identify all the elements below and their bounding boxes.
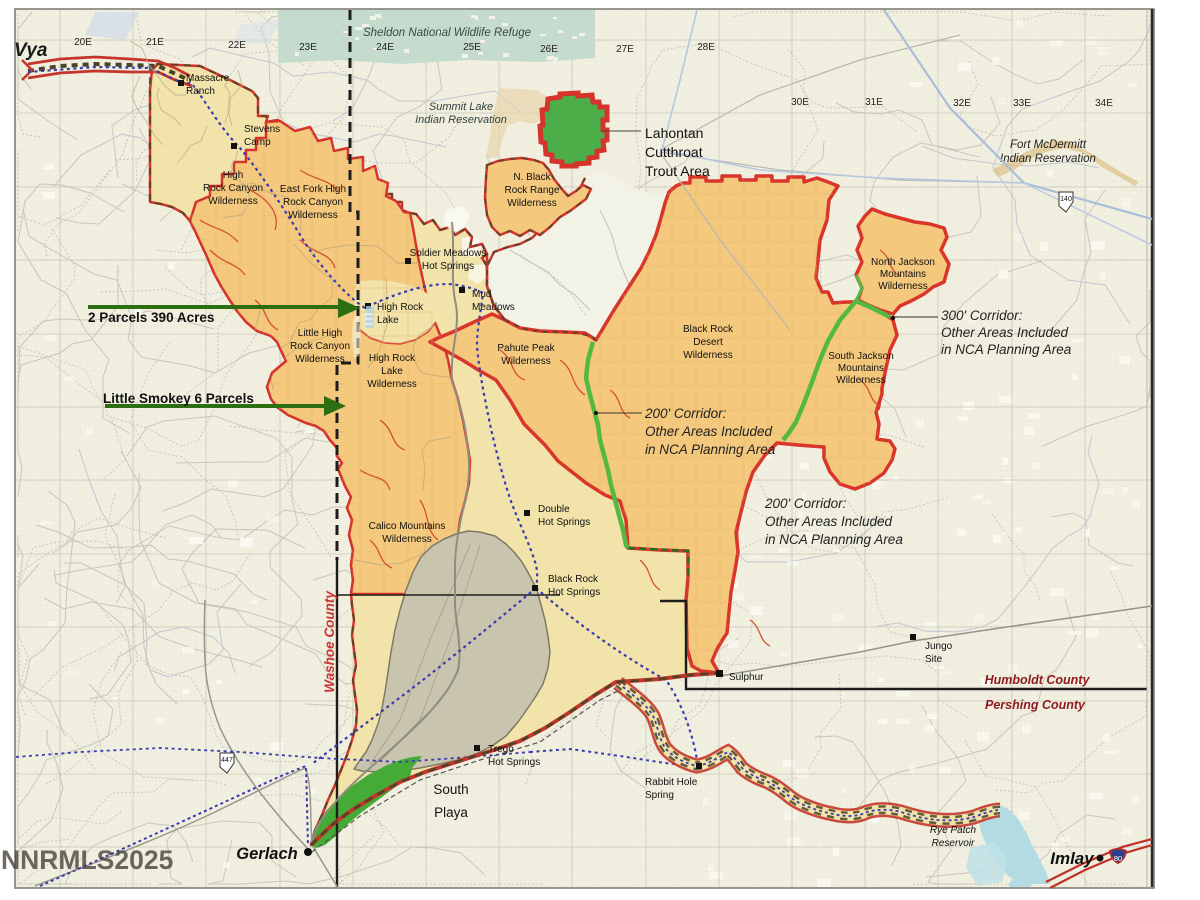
svg-text:Wilderness: Wilderness bbox=[288, 210, 337, 221]
svg-text:200' Corridor:: 200' Corridor: bbox=[644, 406, 727, 421]
svg-text:N. Black: N. Black bbox=[513, 172, 551, 183]
svg-text:Other Areas Included: Other Areas Included bbox=[645, 424, 773, 439]
svg-text:Fort McDermitt: Fort McDermitt bbox=[1010, 139, 1087, 151]
svg-text:Wilderness: Wilderness bbox=[501, 356, 550, 367]
svg-text:in NCA Planning Area: in NCA Planning Area bbox=[941, 342, 1072, 357]
svg-text:South Jackson: South Jackson bbox=[828, 351, 894, 362]
svg-text:200' Corridor:: 200' Corridor: bbox=[764, 496, 847, 511]
svg-text:26E: 26E bbox=[540, 44, 558, 55]
svg-text:Little High: Little High bbox=[298, 328, 342, 339]
svg-text:Site: Site bbox=[925, 654, 943, 665]
svg-text:South: South bbox=[433, 782, 468, 797]
svg-text:Calico Mountains: Calico Mountains bbox=[369, 521, 446, 532]
svg-text:Spring: Spring bbox=[645, 790, 674, 801]
svg-text:Rock Canyon: Rock Canyon bbox=[290, 341, 350, 352]
svg-text:Indian Reservation: Indian Reservation bbox=[1000, 153, 1096, 165]
svg-text:Hot Springs: Hot Springs bbox=[488, 757, 540, 768]
svg-text:Rabbit Hole: Rabbit Hole bbox=[645, 777, 698, 788]
svg-text:Desert: Desert bbox=[693, 337, 723, 348]
svg-text:2 Parcels 390 Acres: 2 Parcels 390 Acres bbox=[88, 310, 214, 325]
svg-text:24E: 24E bbox=[376, 42, 394, 53]
svg-text:Indian Reservation: Indian Reservation bbox=[415, 114, 507, 126]
svg-text:Rye Patch: Rye Patch bbox=[930, 825, 977, 836]
svg-text:Lake: Lake bbox=[381, 366, 403, 377]
svg-text:Reservoir: Reservoir bbox=[932, 838, 975, 849]
svg-text:30E: 30E bbox=[791, 97, 809, 108]
svg-text:Wilderness: Wilderness bbox=[295, 354, 344, 365]
svg-text:Other Areas Included: Other Areas Included bbox=[765, 514, 893, 529]
svg-text:in NCA Planning Area: in NCA Planning Area bbox=[645, 442, 776, 457]
svg-text:Mud: Mud bbox=[472, 289, 491, 300]
svg-text:Massacre: Massacre bbox=[186, 73, 230, 84]
svg-text:Mountains: Mountains bbox=[880, 269, 926, 280]
svg-text:Cutthroat: Cutthroat bbox=[645, 144, 703, 160]
svg-text:Hot Springs: Hot Springs bbox=[548, 587, 600, 598]
svg-text:High Rock: High Rock bbox=[377, 302, 424, 313]
svg-text:32E: 32E bbox=[953, 98, 971, 109]
svg-text:Other Areas Included: Other Areas Included bbox=[941, 325, 1069, 340]
svg-text:Stevens: Stevens bbox=[244, 124, 280, 135]
svg-text:21E: 21E bbox=[146, 37, 164, 48]
svg-text:80: 80 bbox=[1114, 854, 1122, 863]
svg-text:28E: 28E bbox=[697, 42, 715, 53]
svg-text:Wilderness: Wilderness bbox=[683, 350, 732, 361]
svg-text:Rock Range: Rock Range bbox=[504, 185, 559, 196]
svg-text:31E: 31E bbox=[865, 97, 883, 108]
svg-text:Lake: Lake bbox=[377, 315, 399, 326]
svg-text:27E: 27E bbox=[616, 44, 634, 55]
svg-text:Trout Area: Trout Area bbox=[645, 163, 710, 179]
svg-text:Meadows: Meadows bbox=[472, 302, 515, 313]
svg-text:Hot Springs: Hot Springs bbox=[538, 517, 590, 528]
svg-text:Summit Lake: Summit Lake bbox=[429, 101, 493, 113]
svg-text:High: High bbox=[223, 170, 244, 181]
svg-text:Mountains: Mountains bbox=[838, 363, 884, 374]
svg-text:Wilderness: Wilderness bbox=[367, 379, 416, 390]
svg-text:33E: 33E bbox=[1013, 98, 1031, 109]
svg-text:High Rock: High Rock bbox=[369, 353, 416, 364]
svg-text:Rock Canyon: Rock Canyon bbox=[283, 197, 343, 208]
svg-text:Gerlach: Gerlach bbox=[236, 845, 297, 863]
svg-text:Imlay: Imlay bbox=[1050, 849, 1095, 868]
svg-text:Soldier Meadows: Soldier Meadows bbox=[410, 248, 487, 259]
svg-text:20E: 20E bbox=[74, 37, 92, 48]
svg-text:Sheldon National Wildlife Refu: Sheldon National Wildlife Refuge bbox=[363, 27, 531, 39]
svg-text:Little Smokey 6 Parcels: Little Smokey 6 Parcels bbox=[103, 391, 254, 406]
svg-text:Double: Double bbox=[538, 504, 570, 515]
svg-text:34E: 34E bbox=[1095, 98, 1113, 109]
svg-text:300' Corridor:: 300' Corridor: bbox=[941, 308, 1023, 323]
svg-text:Washoe County: Washoe County bbox=[322, 590, 337, 693]
svg-text:Ranch: Ranch bbox=[186, 86, 215, 97]
svg-text:447: 447 bbox=[221, 757, 233, 764]
svg-text:Wilderness: Wilderness bbox=[382, 534, 431, 545]
svg-text:Wilderness: Wilderness bbox=[878, 281, 927, 292]
svg-text:East Fork High: East Fork High bbox=[280, 184, 346, 195]
svg-text:Wilderness: Wilderness bbox=[836, 375, 885, 386]
svg-text:Humboldt County: Humboldt County bbox=[985, 673, 1091, 687]
svg-text:Pershing County: Pershing County bbox=[985, 698, 1086, 712]
svg-text:Trego: Trego bbox=[488, 744, 514, 755]
svg-text:in NCA Plannning Area: in NCA Plannning Area bbox=[765, 532, 903, 547]
svg-text:Playa: Playa bbox=[434, 805, 468, 820]
svg-text:Lahontan: Lahontan bbox=[645, 125, 703, 141]
svg-text:Rock Canyon: Rock Canyon bbox=[203, 183, 263, 194]
svg-text:23E: 23E bbox=[299, 42, 317, 53]
svg-text:Pahute Peak: Pahute Peak bbox=[497, 343, 555, 354]
svg-text:Camp: Camp bbox=[244, 137, 271, 148]
svg-text:NNRMLS2025: NNRMLS2025 bbox=[1, 845, 173, 875]
svg-text:Sulphur: Sulphur bbox=[729, 672, 764, 683]
svg-text:Black Rock: Black Rock bbox=[683, 324, 734, 335]
svg-text:Vya: Vya bbox=[14, 40, 48, 61]
svg-text:Jungo: Jungo bbox=[925, 641, 953, 652]
svg-text:25E: 25E bbox=[463, 42, 481, 53]
svg-text:140: 140 bbox=[1060, 196, 1072, 203]
svg-text:Wilderness: Wilderness bbox=[507, 198, 556, 209]
svg-text:Black Rock: Black Rock bbox=[548, 574, 599, 585]
svg-text:Hot Springs: Hot Springs bbox=[422, 261, 474, 272]
svg-text:22E: 22E bbox=[228, 40, 246, 51]
svg-text:Wilderness: Wilderness bbox=[208, 196, 257, 207]
svg-text:North Jackson: North Jackson bbox=[871, 257, 935, 268]
